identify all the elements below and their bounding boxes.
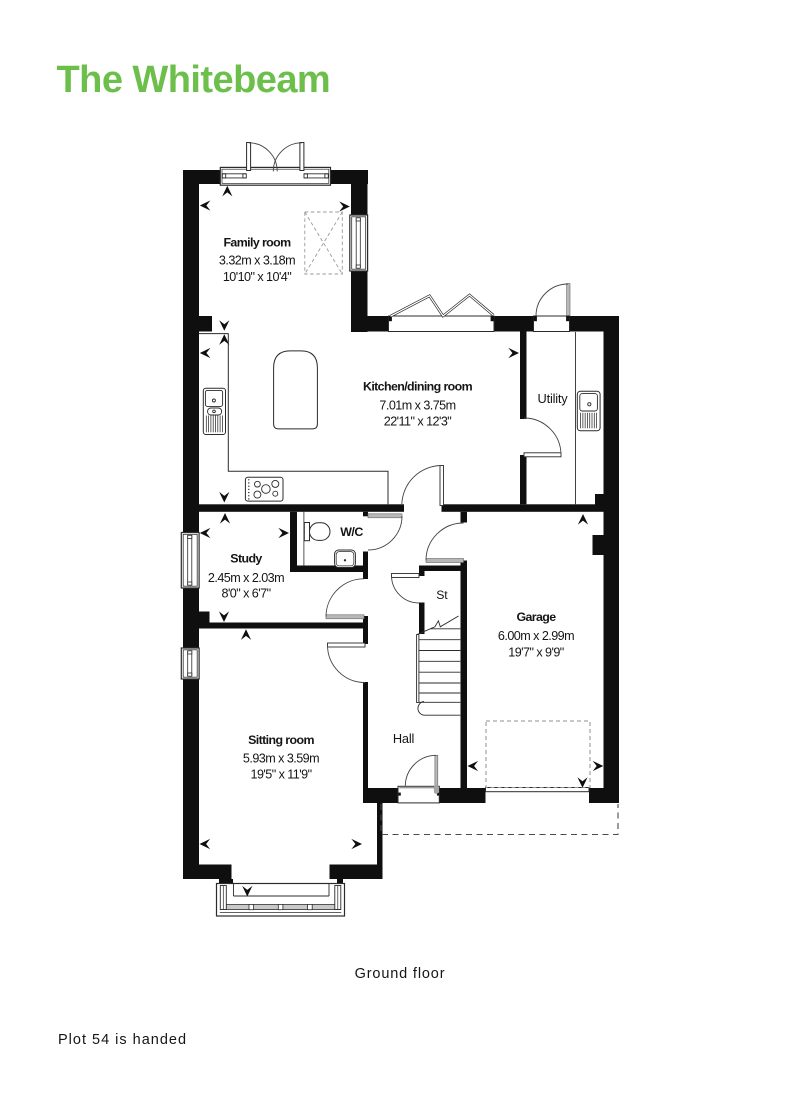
svg-text:Sitting room: Sitting room: [248, 733, 314, 747]
svg-text:Garage: Garage: [516, 610, 556, 624]
svg-text:7.01m x 3.75m: 7.01m x 3.75m: [379, 398, 455, 412]
svg-text:Study: Study: [230, 551, 262, 565]
svg-text:The Whitebeam: The Whitebeam: [57, 59, 331, 101]
svg-text:3.32m x 3.18m: 3.32m x 3.18m: [219, 254, 295, 268]
svg-text:22'11" x 12'3": 22'11" x 12'3": [384, 415, 452, 429]
svg-text:19'7" x 9'9": 19'7" x 9'9": [508, 645, 564, 659]
svg-text:5.93m x 3.59m: 5.93m x 3.59m: [243, 751, 319, 765]
svg-text:10'10" x 10'4": 10'10" x 10'4": [223, 270, 291, 284]
svg-text:Kitchen/dining room: Kitchen/dining room: [363, 380, 473, 394]
svg-text:Ground floor: Ground floor: [355, 966, 446, 982]
svg-text:6.00m x 2.99m: 6.00m x 2.99m: [498, 629, 574, 643]
svg-text:19'5" x 11'9": 19'5" x 11'9": [251, 768, 312, 782]
svg-text:Plot 54 is handed: Plot 54 is handed: [58, 1032, 187, 1048]
svg-text:W/C: W/C: [340, 525, 363, 539]
svg-text:2.45m x 2.03m: 2.45m x 2.03m: [208, 571, 284, 585]
svg-text:St: St: [436, 588, 448, 602]
svg-text:Family room: Family room: [223, 235, 291, 249]
svg-text:Utility: Utility: [538, 391, 569, 406]
svg-text:Hall: Hall: [393, 731, 414, 746]
svg-text:8'0" x 6'7": 8'0" x 6'7": [221, 586, 270, 600]
